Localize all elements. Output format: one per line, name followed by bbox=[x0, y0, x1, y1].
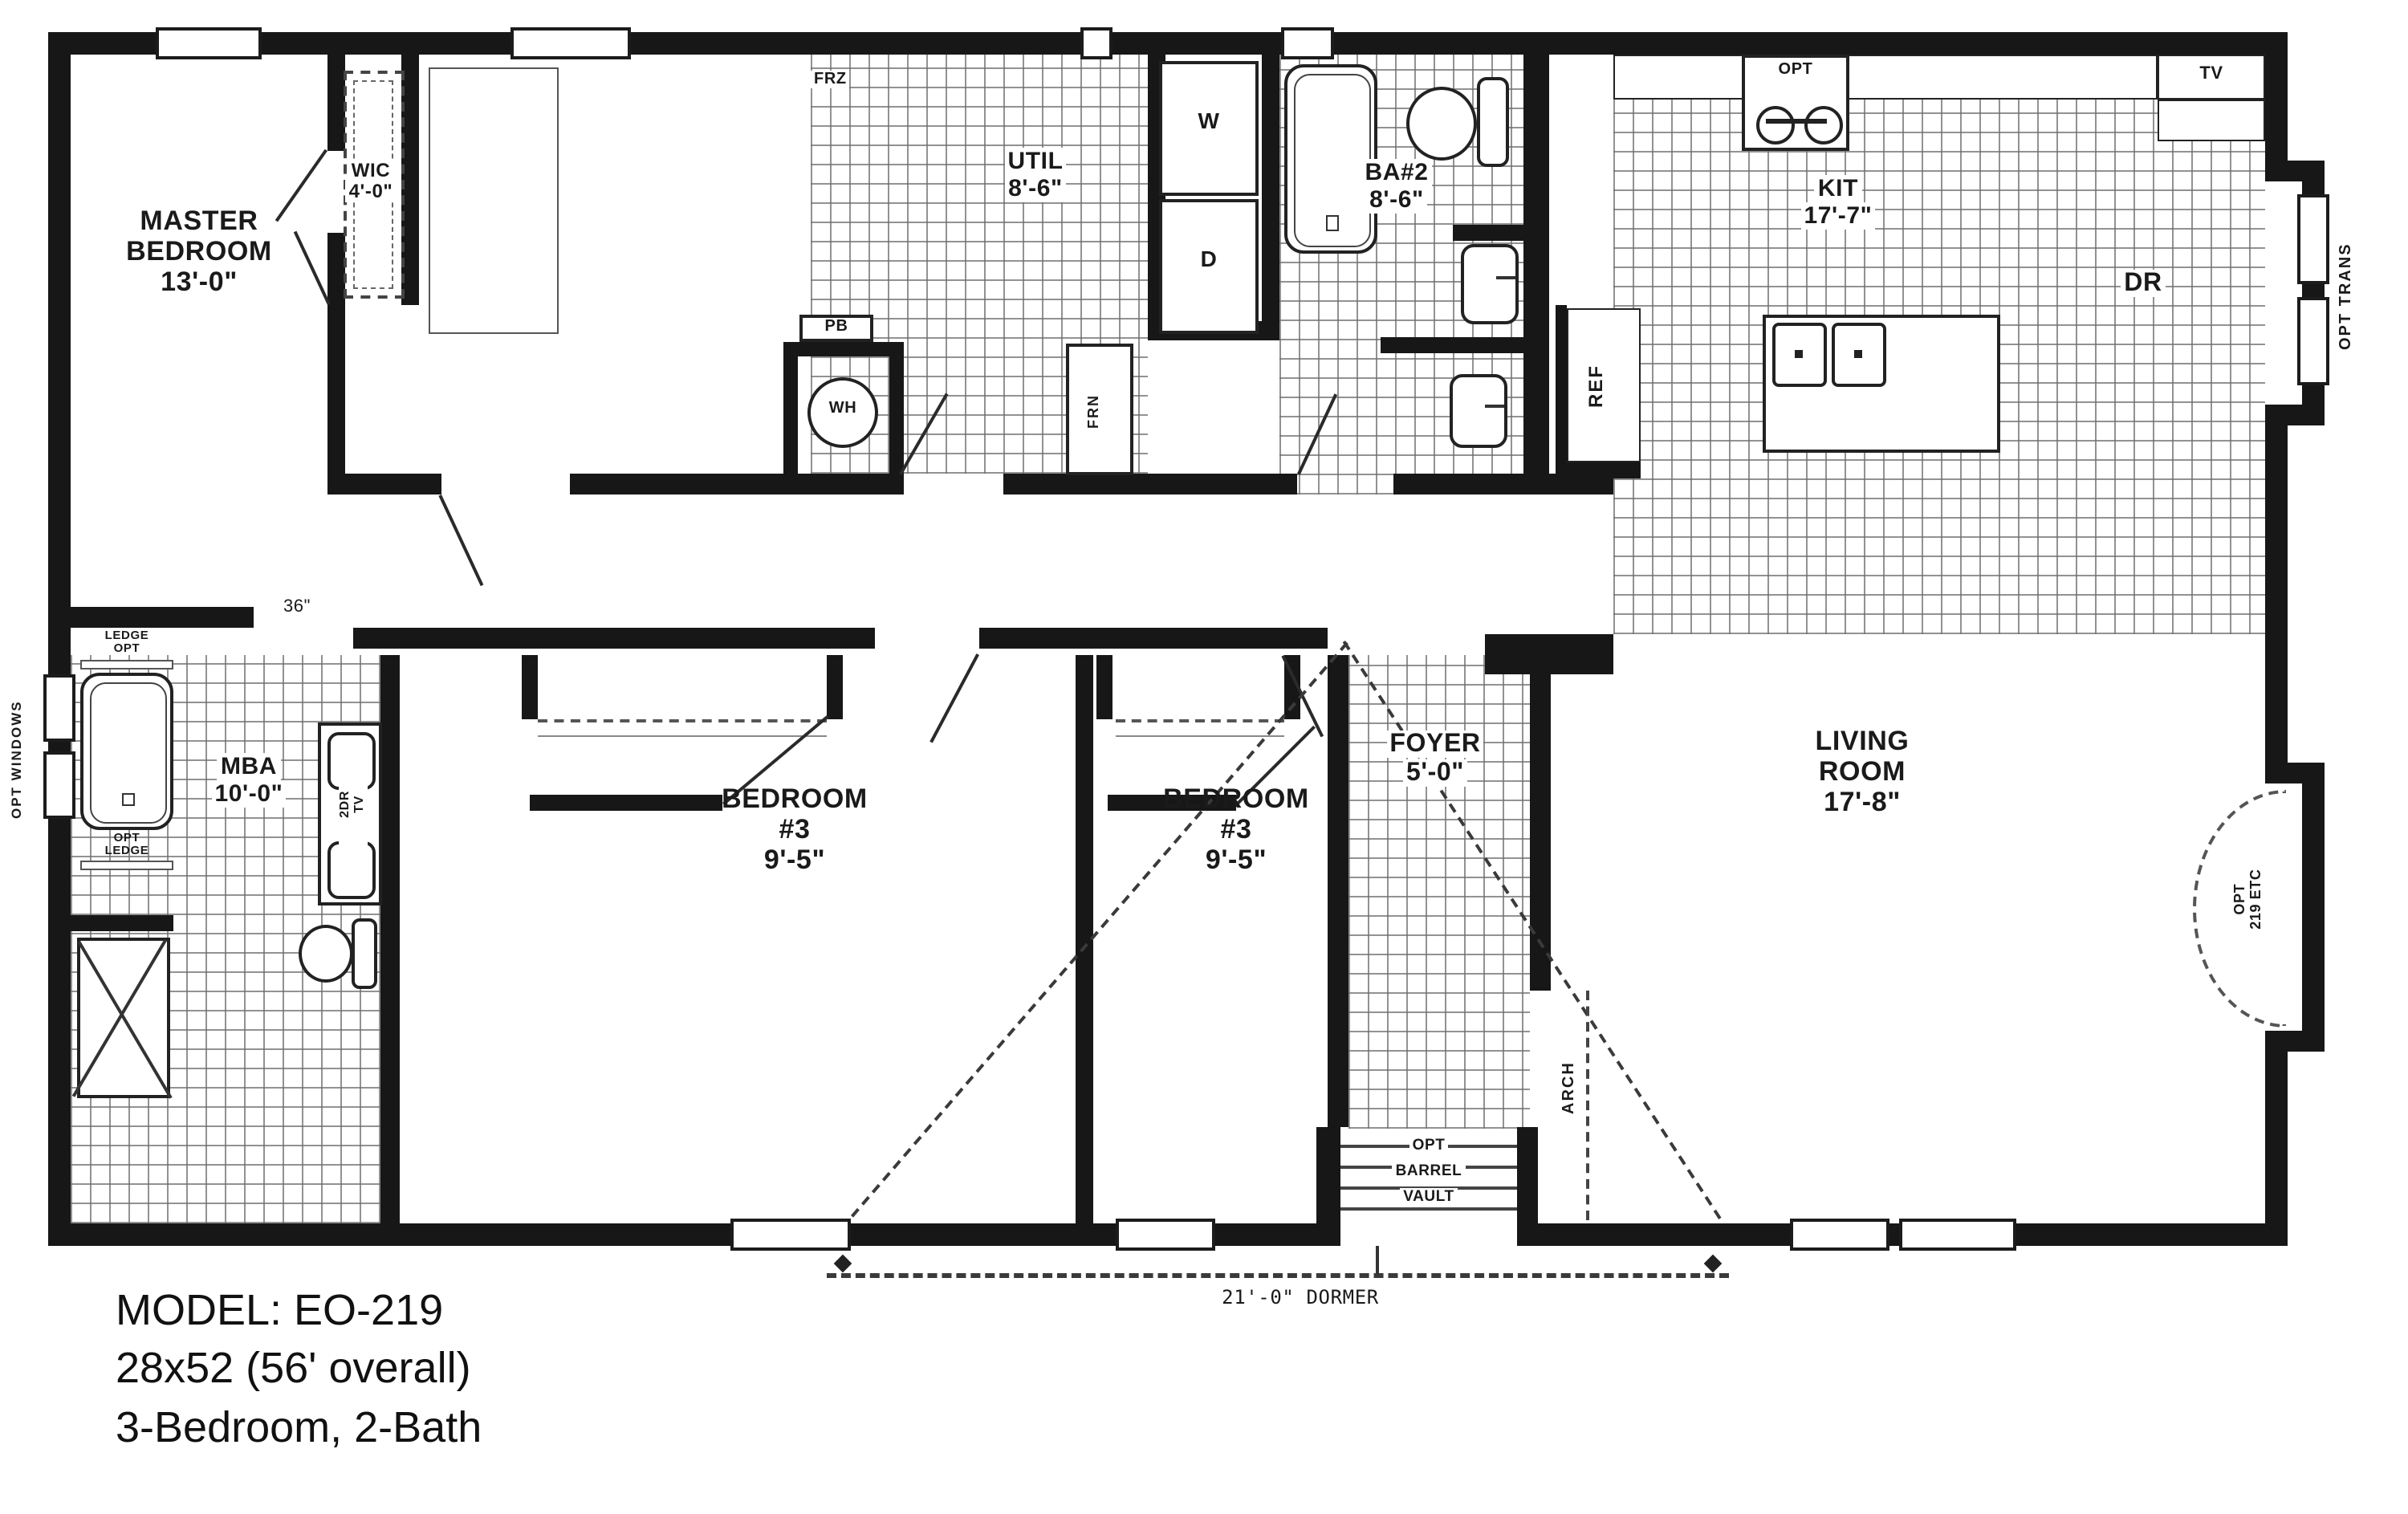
range-opt-label: OPT bbox=[1742, 61, 1849, 79]
wall-hall-bottom-2 bbox=[353, 628, 875, 649]
vault-line-left bbox=[851, 641, 1348, 1217]
wall-closet2-stub-left bbox=[1096, 655, 1112, 719]
opt-ledge-line1: OPT bbox=[114, 830, 140, 845]
wic-line1: WIC bbox=[348, 159, 393, 181]
wall-foyer-corner bbox=[1485, 634, 1613, 674]
island-sink-drain-left bbox=[1795, 350, 1803, 358]
ba2-line2: 8'-6" bbox=[1366, 186, 1427, 214]
foyer-line1: FOYER bbox=[1386, 731, 1483, 758]
window-living-bottom-2 bbox=[1899, 1219, 2016, 1251]
wall-hall-bottom-3 bbox=[979, 628, 1328, 649]
bed3a-line2: #3 bbox=[779, 814, 810, 845]
ledge-opt-line1: LEDGE bbox=[105, 628, 149, 642]
burner-left bbox=[1756, 106, 1795, 144]
wall-wd-right bbox=[1262, 55, 1279, 337]
arch-opening-line bbox=[1586, 991, 1589, 1220]
burner-right bbox=[1804, 106, 1843, 144]
porch-opening bbox=[1340, 1223, 1517, 1246]
wall-ba2-right-upper bbox=[1523, 55, 1549, 247]
annotation-arch: ARCH bbox=[1560, 1020, 1578, 1156]
window-ba2-top bbox=[1281, 27, 1334, 59]
storage-cabinet bbox=[429, 67, 559, 334]
master-line1: MASTER bbox=[140, 206, 258, 236]
barrel-line2: BARREL bbox=[1393, 1162, 1466, 1180]
living-line1: LIVING bbox=[1816, 726, 1910, 756]
ba2-tub-drain bbox=[1326, 215, 1339, 231]
room-label-util: UTIL 8'-6" bbox=[947, 149, 1124, 203]
island-sink-drain-right bbox=[1854, 350, 1862, 358]
room-label-ba2: BA#2 8'-6" bbox=[1308, 161, 1485, 214]
dormer-tick-left bbox=[834, 1255, 852, 1273]
ba2-line1: BA#2 bbox=[1361, 159, 1431, 186]
annotation-opt-219: OPT 219 ETC bbox=[2231, 835, 2264, 963]
wall-left bbox=[48, 32, 71, 1246]
wall-mba-right bbox=[380, 655, 400, 1223]
window-trans-2 bbox=[2297, 297, 2329, 385]
wall-porch-right bbox=[1517, 1127, 1538, 1243]
window-util-top bbox=[1080, 27, 1112, 59]
window-bed2-bottom bbox=[1116, 1219, 1215, 1251]
room-label-master: MASTER BEDROOM 13'-0" bbox=[71, 206, 327, 297]
mba-line1: MBA bbox=[218, 753, 280, 780]
foyer-floor bbox=[1348, 655, 1530, 1129]
master-hall-door bbox=[438, 494, 483, 586]
dormer-center-line bbox=[1376, 1246, 1379, 1275]
wall-wh-left bbox=[783, 342, 798, 494]
ba2-sink-2-faucet bbox=[1485, 405, 1504, 408]
wall-foyer-left bbox=[1328, 655, 1348, 1127]
wall-hall-bottom-1 bbox=[71, 607, 254, 628]
ba2-sink-2 bbox=[1450, 374, 1507, 448]
master-line2: BEDROOM bbox=[126, 236, 272, 267]
room-label-wic: WIC 4'-0" bbox=[321, 161, 421, 204]
ba2-toilet-bowl bbox=[1406, 87, 1477, 161]
wall-right-mid bbox=[2265, 414, 2288, 771]
mba-toilet-tank bbox=[352, 918, 377, 989]
annotation-opt-windows: OPT WINDOWS bbox=[10, 671, 25, 848]
tv-label: TV bbox=[2158, 64, 2265, 84]
wall-closet1-stub-left bbox=[522, 655, 538, 719]
wall-ba2-toilet bbox=[1453, 225, 1549, 241]
util-line1: UTIL bbox=[1004, 148, 1066, 175]
dormer-tick-right bbox=[1704, 1255, 1723, 1273]
living-line2: ROOM bbox=[1819, 756, 1906, 787]
annotation-dormer: 21'-0" DORMER bbox=[1108, 1288, 1493, 1309]
wall-porch-left bbox=[1316, 1127, 1340, 1243]
wall-bay-right bbox=[2302, 763, 2325, 1052]
closet2-shelf bbox=[1116, 719, 1284, 737]
wall-ba2-alcove bbox=[1381, 337, 1525, 353]
wall-hall-top-2 bbox=[570, 474, 899, 494]
room-label-living: LIVING ROOM 17'-8" bbox=[1718, 726, 2007, 817]
ba2-sink-1 bbox=[1461, 244, 1519, 324]
barrel-line3: VAULT bbox=[1400, 1189, 1458, 1207]
room-label-dr: DR bbox=[2087, 270, 2199, 299]
barrel-line1: OPT bbox=[1409, 1137, 1449, 1154]
floor-plan: PB WH FRN FRZ W D OPT TV REF 2DR TV bbox=[0, 0, 2408, 1514]
closet1-shelf bbox=[538, 719, 827, 737]
window-master-top-1 bbox=[156, 27, 262, 59]
wic-line2: 4'-0" bbox=[346, 181, 397, 203]
annotation-opt-ledge: OPT LEDGE bbox=[74, 832, 180, 859]
kit-line1: KIT bbox=[1815, 175, 1861, 202]
tv-cabinet-lower bbox=[2158, 100, 2265, 141]
kitchen-counter-right bbox=[1846, 55, 2158, 100]
bed3b-line3: 9'-5" bbox=[1206, 845, 1267, 875]
window-master-top-2 bbox=[510, 27, 631, 59]
room-label-bed3a: BEDROOM #3 9'-5" bbox=[642, 783, 947, 875]
wall-top bbox=[48, 32, 2288, 55]
wall-closet1-stub-right bbox=[827, 655, 843, 719]
furnace-label: FRN bbox=[1085, 360, 1101, 462]
wall-ba2-right-lower bbox=[1523, 247, 1549, 494]
wall-hall-top-3 bbox=[1003, 474, 1297, 494]
ledge-opt-line2: OPT bbox=[114, 641, 140, 656]
barrel-vault-label: OPT BARREL VAULT bbox=[1348, 1133, 1509, 1211]
ref-label: REF bbox=[1586, 331, 1608, 443]
washer-label: W bbox=[1159, 109, 1259, 134]
wall-ref-left bbox=[1556, 305, 1567, 466]
freezer-label: FRZ bbox=[811, 71, 850, 88]
window-left-2 bbox=[43, 751, 75, 819]
mba-2dr-tv-label: 2DR TV bbox=[339, 753, 368, 856]
opt219-line1: OPT bbox=[2231, 884, 2247, 915]
window-trans-1 bbox=[2297, 194, 2329, 284]
window-left-1 bbox=[43, 674, 75, 742]
mba-2dr-line1: 2DR bbox=[337, 791, 352, 818]
mba-ledge-top bbox=[80, 660, 173, 669]
mba-tub-drain bbox=[122, 793, 135, 806]
bed1-door bbox=[929, 653, 979, 743]
bed3a-line3: 9'-5" bbox=[764, 845, 825, 875]
footer-model: MODEL: EO-219 bbox=[116, 1281, 482, 1340]
mba-toilet-bowl bbox=[299, 925, 353, 983]
room-label-kit: KIT 17'-7" bbox=[1750, 177, 1926, 230]
ba2-toilet-tank bbox=[1477, 77, 1509, 167]
mba-ledge-bottom bbox=[80, 861, 173, 870]
footer-rooms: 3-Bedroom, 2-Bath bbox=[116, 1398, 482, 1457]
kitchen-counter-left bbox=[1613, 55, 1745, 100]
wall-wh-top bbox=[783, 342, 904, 356]
window-bed1-bottom bbox=[730, 1219, 851, 1251]
bed3b-line1: BEDROOM bbox=[1163, 783, 1309, 814]
opt219-line2: 219 ETC bbox=[2247, 869, 2264, 930]
util-line2: 8'-6" bbox=[1005, 175, 1066, 202]
wall-hall-top-1 bbox=[345, 474, 441, 494]
wall-right-top bbox=[2265, 32, 2288, 169]
room-label-foyer: FOYER 5'-0" bbox=[1345, 731, 1525, 788]
foyer-line2: 5'-0" bbox=[1403, 759, 1467, 787]
wall-master-right-lower bbox=[327, 233, 345, 494]
master-line3: 13'-0" bbox=[161, 267, 238, 297]
room-label-bed3b: BEDROOM #3 9'-5" bbox=[1092, 783, 1381, 875]
mba-2dr-line2: TV bbox=[352, 796, 366, 813]
mba-line2: 10'-0" bbox=[211, 780, 286, 808]
water-heater-label: WH bbox=[807, 400, 878, 417]
footer-size: 28x52 (56' overall) bbox=[116, 1340, 482, 1398]
window-living-bottom-1 bbox=[1790, 1219, 1889, 1251]
wall-right-bottom bbox=[2265, 1044, 2288, 1246]
wall-mba-tub-divider bbox=[71, 915, 173, 931]
annotation-ledge-opt: LEDGE OPT bbox=[74, 629, 180, 657]
footer-text: MODEL: EO-219 28x52 (56' overall) 3-Bedr… bbox=[116, 1281, 482, 1457]
pb-label: PB bbox=[799, 318, 873, 336]
living-line3: 17'-8" bbox=[1824, 787, 1901, 817]
room-label-mba: MBA 10'-0" bbox=[169, 755, 329, 808]
bed3b-line2: #3 bbox=[1220, 814, 1251, 845]
dormer-line bbox=[827, 1273, 1729, 1278]
ba2-sink-1-faucet bbox=[1496, 276, 1515, 279]
wall-master-right-upper bbox=[327, 55, 345, 151]
annotation-36: 36" bbox=[241, 597, 353, 617]
bed3a-line1: BEDROOM bbox=[722, 783, 868, 814]
opt-ledge-line2: LEDGE bbox=[105, 844, 149, 858]
burner-bar bbox=[1766, 119, 1827, 124]
kit-line2: 17'-7" bbox=[1800, 202, 1875, 230]
annotation-opt-trans: OPT TRANS bbox=[2337, 193, 2355, 401]
dryer-label: D bbox=[1159, 247, 1259, 272]
dr-text: DR bbox=[2121, 270, 2165, 297]
